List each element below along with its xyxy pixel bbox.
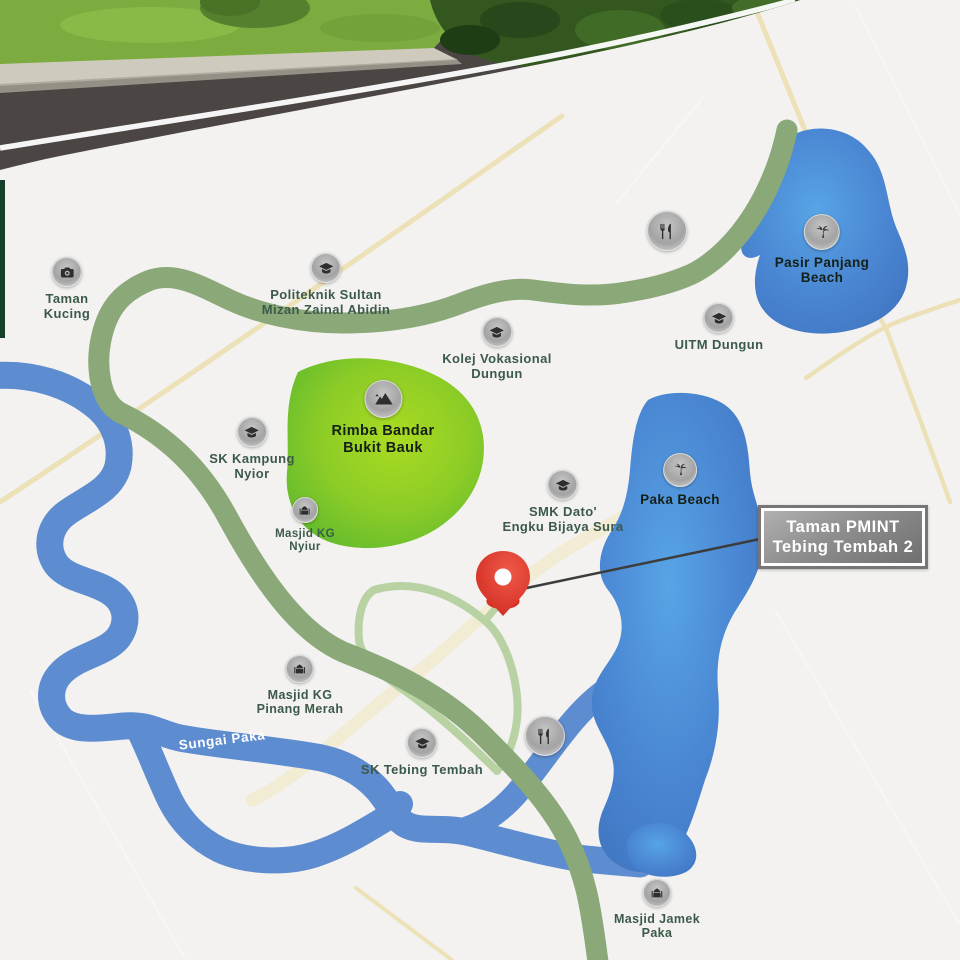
project-name-line1: Taman PMINT [786,517,899,537]
marker-sk-tebing-tembah: SK Tebing Tembah [361,728,483,778]
marker-label: Kolej VokasionalDungun [442,352,551,382]
graduation-icon [407,728,437,758]
mosque-icon [643,879,671,907]
marker-label: SK KampungNyior [209,452,295,482]
marker-pasir-panjang-beach: Pasir PanjangBeach [775,214,870,286]
marker-masjid-jamek-paka: Masjid JamekPaka [614,879,700,941]
marker-label: Masjid JamekPaka [614,912,700,941]
mosque-icon [286,655,314,683]
marker-masjid-kg-pinang-merah: Masjid KGPinang Merah [257,655,344,717]
palm-icon [663,453,697,487]
map-canvas [0,0,960,960]
marker-restaurant-south [525,716,565,756]
palm-icon [804,214,840,250]
marker-label: Paka Beach [640,492,720,507]
marker-kolej-vokasional-dungun: Kolej VokasionalDungun [442,317,551,382]
marker-taman-kucing: TamanKucing [44,257,90,322]
marker-label: UITM Dungun [675,338,764,353]
marker-label: TamanKucing [44,292,90,322]
left-edge-accent [0,180,5,338]
marker-uitm-dungun: UITM Dungun [675,303,764,353]
utensils-icon [525,716,565,756]
marker-label: Politeknik SultanMizan Zainal Abidin [262,288,390,318]
marker-smk-dato-engku-bijaya-sura: SMK Dato'Engku Bijaya Sura [503,470,624,535]
project-callout: Taman PMINT Tebing Tembah 2 [758,505,928,569]
location-map: Sungai Paka Taman PMINT Tebing Tembah 2 … [0,0,960,960]
camera-icon [52,257,82,287]
mosque-icon [292,497,318,523]
utensils-icon [647,211,687,251]
marker-label: Rimba BandarBukit Bauk [331,423,434,456]
marker-label: Masjid KGNyiur [275,528,335,554]
marker-label: SK Tebing Tembah [361,763,483,778]
marker-paka-beach: Paka Beach [640,453,720,507]
marker-restaurant-north [647,211,687,251]
marker-rimba-bandar-bukit-bauk: Rimba BandarBukit Bauk [331,380,434,456]
marker-label: SMK Dato'Engku Bijaya Sura [503,505,624,535]
graduation-icon [482,317,512,347]
mountain-icon [364,380,402,418]
graduation-icon [237,417,267,447]
marker-politeknik-sultan-mizan: Politeknik SultanMizan Zainal Abidin [262,253,390,318]
marker-label: Masjid KGPinang Merah [257,688,344,717]
graduation-icon [704,303,734,333]
graduation-icon [311,253,341,283]
graduation-icon [548,470,578,500]
marker-sk-kampung-nyior: SK KampungNyior [209,417,295,482]
marker-label: Pasir PanjangBeach [775,255,870,286]
project-name-line2: Tebing Tembah 2 [773,537,914,557]
marker-masjid-kg-nyiur: Masjid KGNyiur [275,497,335,554]
